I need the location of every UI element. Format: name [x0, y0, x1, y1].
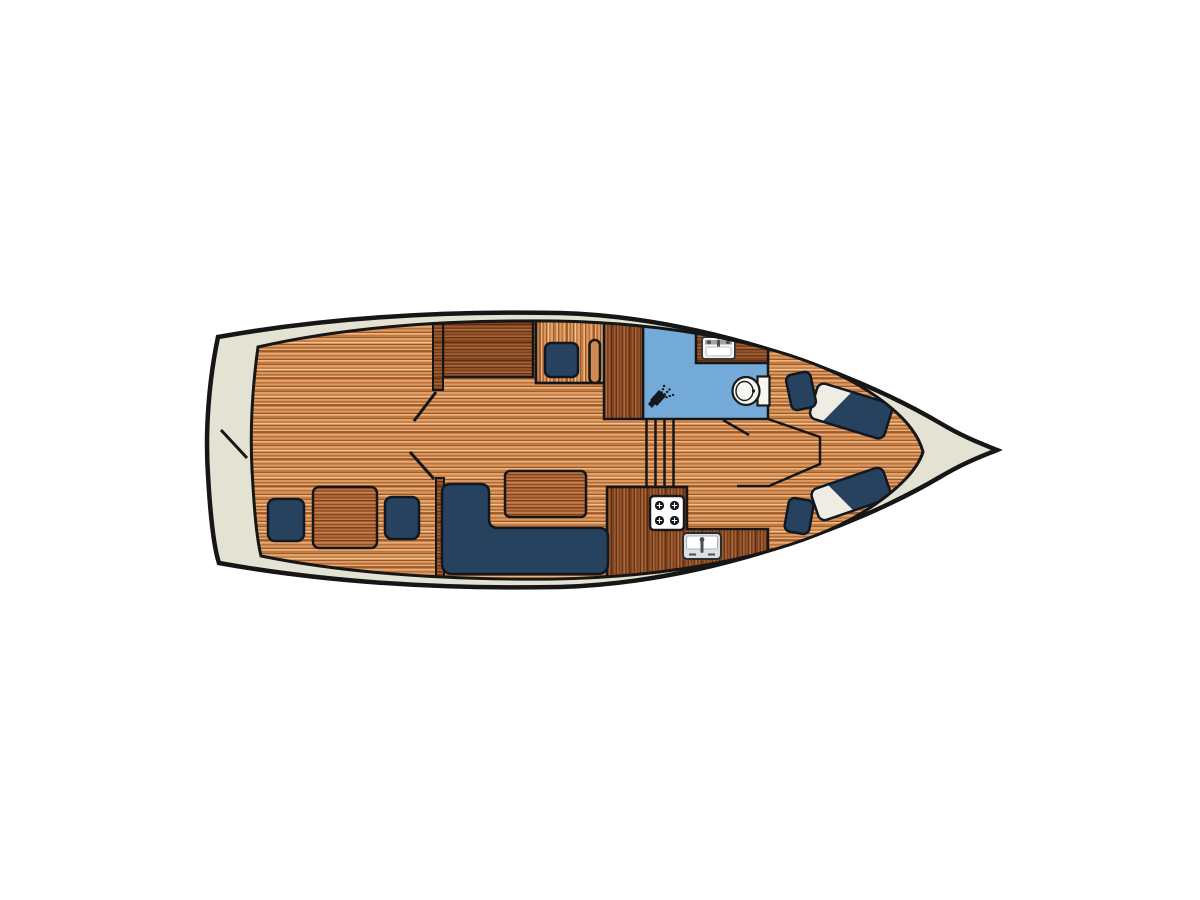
saloon-table — [505, 471, 586, 517]
toilet-icon — [733, 377, 770, 406]
galley-sink-icon — [683, 533, 721, 559]
bed-side-table-lower — [784, 497, 815, 535]
boat-floor-plan-canvas — [0, 0, 1200, 900]
bulkhead-wall-upper — [433, 318, 443, 390]
wardrobe-cabinet — [604, 320, 643, 419]
floor-plan-svg — [0, 0, 1200, 900]
cockpit-seat-right — [385, 497, 419, 539]
cockpit-table — [313, 487, 377, 548]
berth-seat-cushion — [545, 343, 578, 377]
sideboard-panel — [443, 319, 533, 377]
door-handle — [590, 340, 601, 383]
stove-icon — [650, 496, 684, 530]
cockpit-seat-left — [268, 499, 304, 541]
